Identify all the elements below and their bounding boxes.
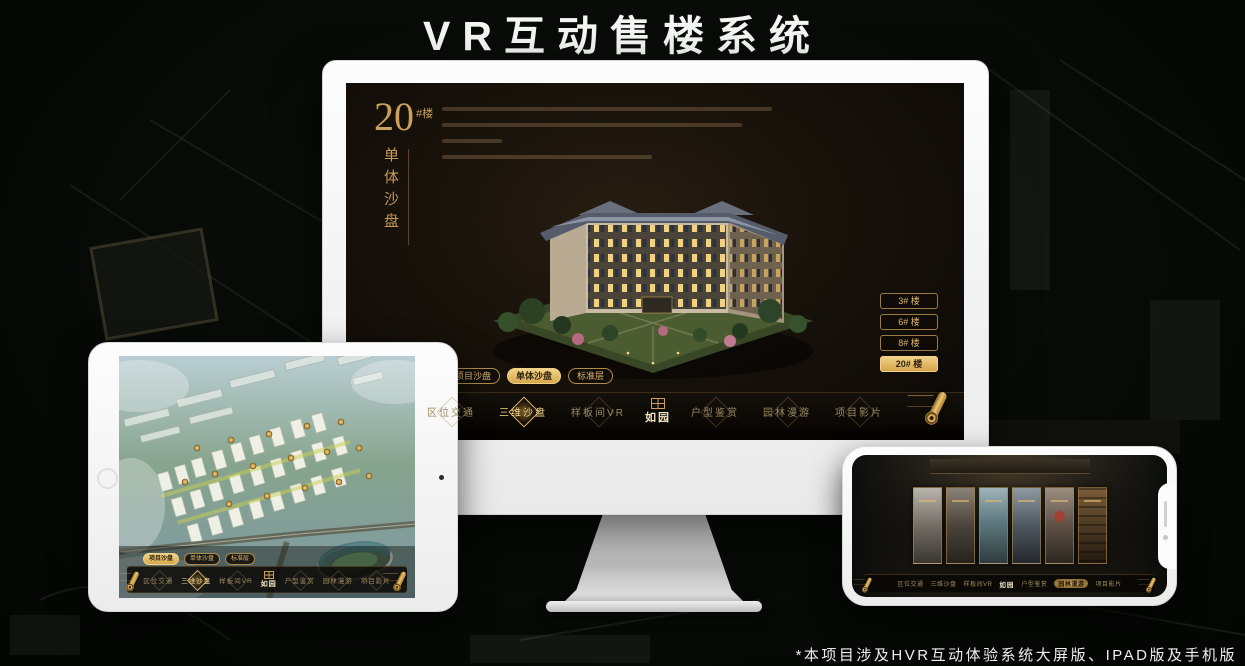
- nav-item-showroom-vr[interactable]: 样板间VR: [964, 579, 993, 588]
- floor-button-20[interactable]: 20# 楼: [880, 356, 938, 372]
- logo-text: 如园: [999, 579, 1014, 589]
- tab-project-sandbox[interactable]: 项目沙盘: [143, 553, 179, 565]
- camera-icon: [439, 475, 444, 480]
- nav-item-project-film[interactable]: 项目影片: [1095, 579, 1121, 588]
- description-line: [442, 123, 742, 127]
- logo-seal-icon: [264, 571, 274, 579]
- floor-button-8[interactable]: 8# 楼: [880, 335, 938, 351]
- monitor-stand-base: [546, 601, 762, 612]
- tablet-device: 项目沙盘 单体沙盘 标准层 区位交通 三维沙盘 样板间VR 如园 户型鉴赏 园林…: [88, 342, 458, 612]
- brand-logo[interactable]: 如园: [645, 398, 671, 425]
- scroll-handle[interactable]: [933, 391, 942, 421]
- footnote: *本项目涉及HVR互动体验系统大屏版、IPAD版及手机版: [796, 644, 1237, 665]
- floor-button-group: 3# 楼 6# 楼 8# 楼 20# 楼: [880, 293, 938, 372]
- nav-item-project-film[interactable]: 项目影片: [831, 404, 887, 419]
- floor-button-6[interactable]: 6# 楼: [880, 314, 938, 330]
- scroll-handle[interactable]: [1149, 577, 1153, 591]
- nav-item-sandbox[interactable]: 三维沙盘: [495, 404, 551, 419]
- gallery-panel[interactable]: [1078, 487, 1107, 564]
- phone-notch: [1158, 483, 1176, 569]
- nav-item-showroom-vr[interactable]: 样板间VR: [567, 404, 629, 419]
- tablet-screen: 项目沙盘 单体沙盘 标准层 区位交通 三维沙盘 样板间VR 如园 户型鉴赏 园林…: [119, 356, 415, 598]
- nav-item-location[interactable]: 区位交通: [143, 575, 173, 585]
- description-line: [442, 139, 502, 143]
- brand-logo[interactable]: 如园: [261, 571, 277, 589]
- scroll-icon: [927, 391, 948, 422]
- scroll-icon: [127, 571, 140, 590]
- tab-standard-floor[interactable]: 标准层: [225, 553, 255, 565]
- poster-canvas: VR互动售楼系统 20 #楼 单体沙盘: [0, 0, 1245, 666]
- page-title: VR互动售楼系统: [0, 2, 1245, 62]
- block-title: 20 #楼: [374, 97, 433, 137]
- block-suffix: #楼: [416, 105, 433, 121]
- view-tab-group: 项目沙盘 单体沙盘 标准层: [446, 368, 613, 384]
- brand-logo[interactable]: 如园: [999, 579, 1014, 589]
- nav-item-garden-tour[interactable]: 园林漫游: [1054, 579, 1088, 588]
- tablet-frame: 项目沙盘 单体沙盘 标准层 区位交通 三维沙盘 样板间VR 如园 户型鉴赏 园林…: [88, 342, 458, 612]
- description-line: [442, 155, 652, 159]
- tablet-nav-bar: 区位交通 三维沙盘 样板间VR 如园 户型鉴赏 园林漫游 项目影片: [127, 566, 407, 593]
- divider: [408, 149, 409, 245]
- scroll-handle[interactable]: [398, 571, 403, 589]
- nav-item-showroom-vr[interactable]: 样板间VR: [219, 575, 253, 585]
- scroll-handle[interactable]: [131, 571, 136, 589]
- nav-item-project-film[interactable]: 项目影片: [361, 575, 391, 585]
- phone-nav-bar: 区位交通 三维沙盘 样板间VR 如园 户型鉴赏 园林漫游 项目影片: [864, 574, 1155, 592]
- nav-item-garden-tour[interactable]: 园林漫游: [759, 404, 815, 419]
- tab-single-sandbox[interactable]: 单体沙盘: [184, 553, 220, 565]
- building-render: [438, 161, 868, 391]
- nav-item-sandbox[interactable]: 三维沙盘: [181, 575, 211, 585]
- tablet-view-tabs: 项目沙盘 单体沙盘 标准层: [143, 553, 255, 565]
- floor-button-3[interactable]: 3# 楼: [880, 293, 938, 309]
- nav-item-location[interactable]: 区位交通: [898, 579, 924, 588]
- block-subtitle: 单体沙盘: [380, 147, 401, 235]
- logo-seal-icon: [651, 398, 665, 409]
- block-number: 20: [374, 97, 414, 137]
- speaker-icon: [1164, 501, 1167, 527]
- scroll-icon: [394, 571, 407, 590]
- scroll-icon: [863, 577, 873, 591]
- gallery-panel[interactable]: [979, 487, 1008, 564]
- gallery-panel[interactable]: [946, 487, 975, 564]
- gallery-panel[interactable]: [913, 487, 942, 564]
- gallery-panel[interactable]: [1045, 487, 1074, 564]
- nav-item-floorplans[interactable]: 户型鉴赏: [687, 404, 743, 419]
- logo-text: 如园: [261, 579, 277, 589]
- tab-standard-floor[interactable]: 标准层: [568, 368, 613, 384]
- gallery-panels: [913, 487, 1107, 564]
- gallery-panel[interactable]: [1012, 487, 1041, 564]
- camera-icon: [1163, 535, 1168, 540]
- home-button[interactable]: [97, 468, 118, 489]
- description-line: [442, 107, 772, 111]
- phone-device: 区位交通 三维沙盘 样板间VR 如园 户型鉴赏 园林漫游 项目影片: [842, 446, 1177, 606]
- nav-item-sandbox[interactable]: 三维沙盘: [931, 579, 957, 588]
- nav-item-garden-tour[interactable]: 园林漫游: [323, 575, 353, 585]
- phone-frame: 区位交通 三维沙盘 样板间VR 如园 户型鉴赏 园林漫游 项目影片: [842, 446, 1177, 606]
- pavilion-roof-image: [930, 459, 1090, 474]
- tab-single-sandbox[interactable]: 单体沙盘: [507, 368, 561, 384]
- nav-item-floorplans[interactable]: 户型鉴赏: [285, 575, 315, 585]
- phone-screen: 区位交通 三维沙盘 样板间VR 如园 户型鉴赏 园林漫游 项目影片: [852, 455, 1167, 597]
- logo-text: 如园: [645, 409, 671, 425]
- nav-item-location[interactable]: 区位交通: [423, 404, 479, 419]
- nav-item-floorplans[interactable]: 户型鉴赏: [1021, 579, 1047, 588]
- scroll-icon: [1147, 577, 1157, 591]
- scroll-handle[interactable]: [865, 577, 869, 591]
